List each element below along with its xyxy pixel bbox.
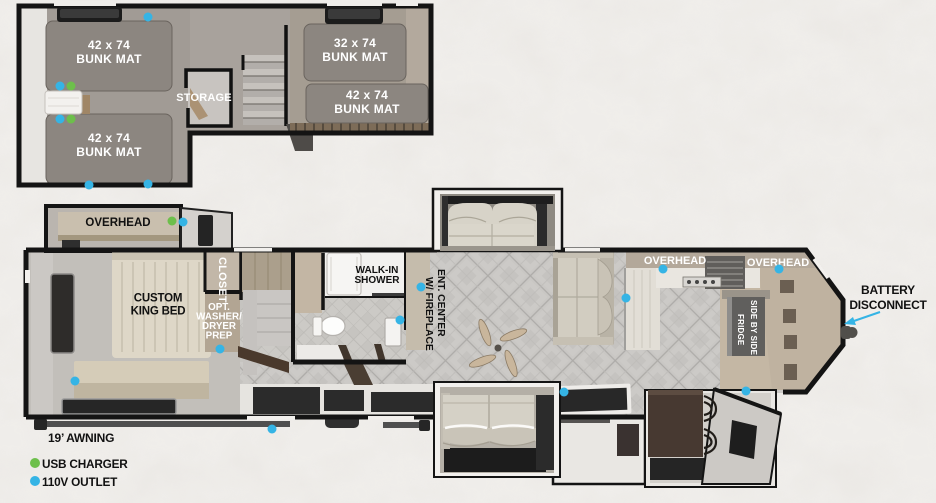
svg-text:BUNK MAT: BUNK MAT: [76, 145, 142, 159]
svg-text:USB CHARGER: USB CHARGER: [42, 457, 128, 471]
svg-text:CUSTOM: CUSTOM: [134, 293, 182, 305]
svg-text:OVERHEAD: OVERHEAD: [644, 255, 706, 267]
svg-text:42 x 74: 42 x 74: [88, 131, 130, 145]
svg-text:FRIDGE: FRIDGE: [736, 314, 745, 346]
svg-text:SIDE BY SIDE: SIDE BY SIDE: [749, 300, 758, 356]
svg-text:DISCONNECT: DISCONNECT: [849, 298, 927, 312]
svg-text:OVERHEAD: OVERHEAD: [85, 217, 150, 229]
svg-text:ENT. CENTER: ENT. CENTER: [435, 269, 446, 337]
svg-text:19’ AWNING: 19’ AWNING: [48, 431, 114, 445]
svg-text:42 x 74: 42 x 74: [88, 38, 130, 52]
svg-text:32 x 74: 32 x 74: [334, 36, 376, 50]
svg-text:BUNK MAT: BUNK MAT: [322, 50, 388, 64]
svg-text:STORAGE: STORAGE: [176, 92, 232, 104]
svg-text:BUNK MAT: BUNK MAT: [334, 102, 400, 116]
svg-text:BATTERY: BATTERY: [861, 283, 915, 297]
svg-text:SHOWER: SHOWER: [355, 275, 401, 286]
svg-text:42 x 74: 42 x 74: [346, 88, 388, 102]
svg-text:BUNK MAT: BUNK MAT: [76, 52, 142, 66]
svg-text:KING BED: KING BED: [131, 306, 186, 318]
svg-text:PREP: PREP: [206, 331, 233, 342]
svg-text:CLOSET: CLOSET: [216, 257, 228, 303]
svg-text:110V OUTLET: 110V OUTLET: [42, 475, 118, 489]
